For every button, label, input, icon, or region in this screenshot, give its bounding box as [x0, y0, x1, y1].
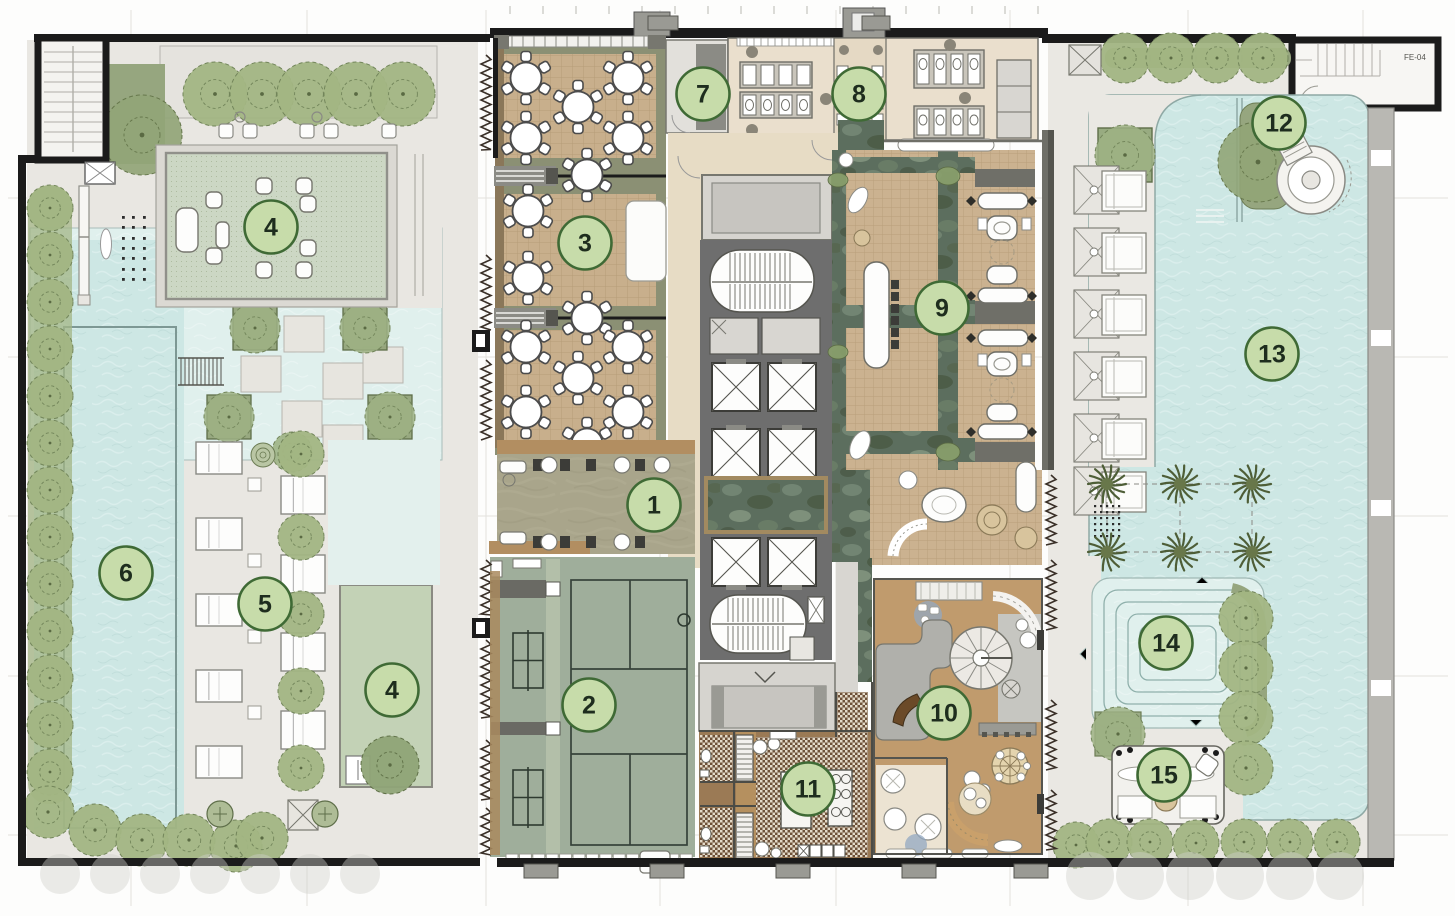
svg-text:8: 8: [852, 81, 866, 109]
svg-text:FE-04: FE-04: [1404, 53, 1426, 62]
svg-text:4: 4: [264, 214, 278, 242]
svg-text:15: 15: [1150, 762, 1178, 790]
svg-text:9: 9: [935, 295, 949, 323]
svg-text:5: 5: [258, 591, 272, 619]
svg-text:14: 14: [1152, 630, 1180, 658]
svg-text:2: 2: [582, 692, 596, 720]
svg-text:12: 12: [1265, 110, 1293, 138]
svg-text:11: 11: [795, 776, 822, 804]
svg-text:13: 13: [1258, 341, 1286, 369]
svg-text:7: 7: [696, 81, 710, 109]
svg-text:1: 1: [647, 492, 661, 520]
svg-text:3: 3: [578, 230, 592, 258]
svg-text:10: 10: [930, 700, 958, 728]
svg-text:4: 4: [385, 677, 399, 705]
svg-text:6: 6: [119, 560, 133, 588]
